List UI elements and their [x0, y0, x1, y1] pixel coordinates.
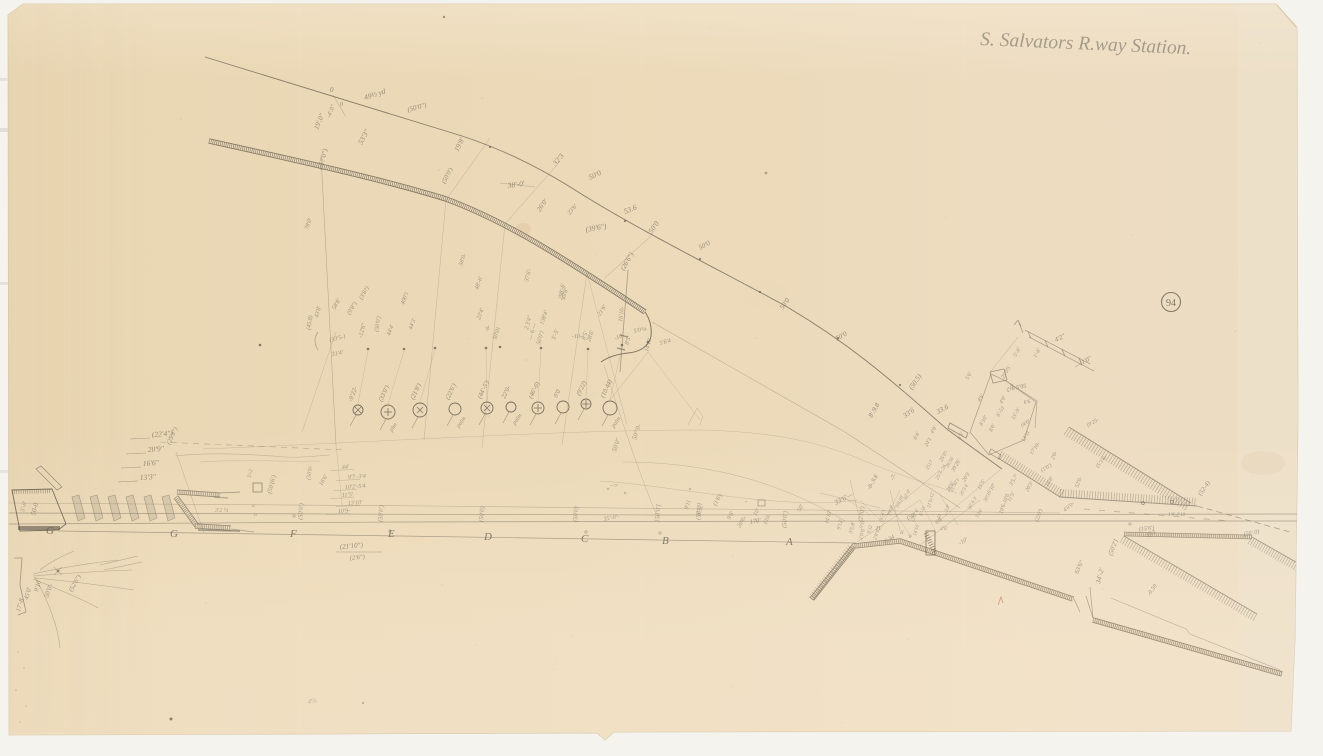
svg-text:D: D — [483, 531, 492, 543]
svg-text:3'2 ¼: 3'2 ¼ — [214, 508, 229, 514]
svg-text:F: F — [289, 528, 297, 540]
svg-text:H: H — [899, 531, 904, 536]
svg-text:C: C — [581, 533, 589, 545]
svg-text:4%: 4% — [307, 696, 318, 706]
svg-text:(50'0'): (50'0') — [781, 511, 789, 528]
svg-text:16'6": 16'6" — [143, 458, 160, 468]
svg-text:G: G — [170, 528, 178, 540]
svg-text:0: 0 — [340, 102, 343, 108]
svg-text:=’0’: =’0’ — [610, 483, 619, 488]
svg-text:E: E — [387, 528, 395, 540]
svg-text:(50'0'): (50'0') — [377, 505, 385, 522]
svg-text:(50'0): (50'0) — [572, 506, 580, 522]
svg-text:(50'0'): (50'0') — [297, 503, 305, 520]
svg-text:20'9": 20'9" — [148, 444, 165, 454]
svg-text:-10-: -10- — [572, 334, 582, 340]
svg-text:0: 0 — [330, 86, 334, 94]
svg-text:A: A — [785, 536, 793, 548]
svg-text:13'3": 13'3" — [140, 472, 157, 482]
svg-text:(50'0): (50'0) — [478, 506, 486, 522]
svg-text:94: 94 — [1166, 298, 1176, 309]
svg-text:(2'6"): (2'6") — [350, 554, 366, 562]
svg-text:×: × — [251, 503, 255, 510]
svg-text:1'0'.2'10: 1'0'.2'10 — [1168, 513, 1185, 518]
svg-text:o: o — [254, 512, 257, 518]
svg-text:6'6: 6'6 — [1023, 399, 1031, 406]
svg-text:B: B — [662, 535, 669, 547]
